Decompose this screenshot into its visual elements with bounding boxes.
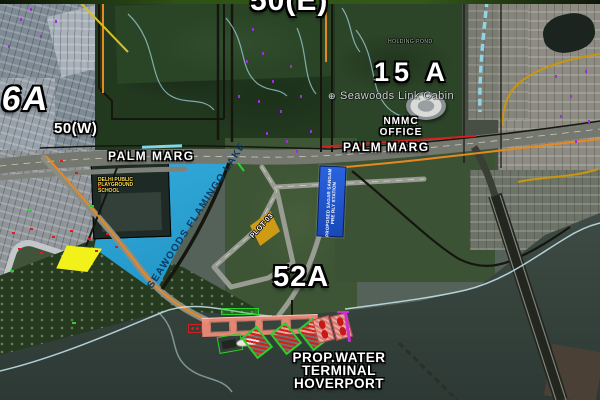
satellite-planning-map: PROPOSED SAGAR SANGAM PRE RLY STATION PL… [0,0,600,400]
pier-red-marker-box [188,324,202,333]
ochre-road-1 [503,54,600,126]
contour-3 [297,28,316,94]
sector-label-52a: 52A [273,262,329,292]
rail-bridge-rail-2 [500,195,566,400]
nmmc-office-label: NMMC OFFICE [374,117,428,138]
ochre-road-lines [503,54,600,182]
bridge-approach [474,147,495,196]
pier-green-bar [221,308,259,315]
shoreline-east [345,223,600,309]
sector-label-6a: 6A [0,82,52,118]
link-cabin-icon: ⊕ [328,91,336,101]
holding-pond-label: HOLDING POND [388,40,433,45]
pier-berth-1 [210,321,230,333]
road-label-palm-marg-east: PALM MARG [343,141,430,154]
rail-bridge-band [495,195,561,400]
sector-label-15a: 15 A [374,58,450,86]
jetty-piles-dashed [399,343,457,400]
contour-5 [342,8,360,52]
nmmc-office-line1: NMMC [374,117,428,128]
contour-1 [128,14,214,110]
sector-label-50e: 50(E) [250,0,328,17]
proposed-station-label: PROPOSED SAGAR SANGAM PRE RLY STATION [324,169,339,237]
creek-road-east [352,171,570,266]
school-line3: SCHOOL [98,189,144,194]
seawoods-link-cabin-row: ⊕ Seawoods Link Cabin [328,86,454,98]
magenta-line-top [337,311,349,313]
sector-label-50w: 50(W) [54,121,97,137]
ochre-road-2 [518,169,598,182]
bridge-group [399,147,566,400]
contour-2 [226,18,287,96]
nmmc-office-line2: OFFICE [374,128,428,139]
boundary-forest-parcel [99,0,224,119]
rail-bridge-rail-1 [490,196,556,400]
school-label: DELHI PUBLIC PLAYGROUND SCHOOL [98,178,144,194]
proposed-station-box: PROPOSED SAGAR SANGAM PRE RLY STATION [316,165,346,237]
railway-dashed-cyan [480,0,487,112]
road-label-palm-marg-west: PALM MARG [108,150,195,163]
hoverport-line3: HOVERPORT [283,377,395,390]
hoverport-label: PROP.WATER TERMINAL HOVERPORT [283,351,395,390]
seawoods-link-cabin-label: Seawoods Link Cabin [340,90,454,102]
pier-green-box-fill [222,339,237,349]
